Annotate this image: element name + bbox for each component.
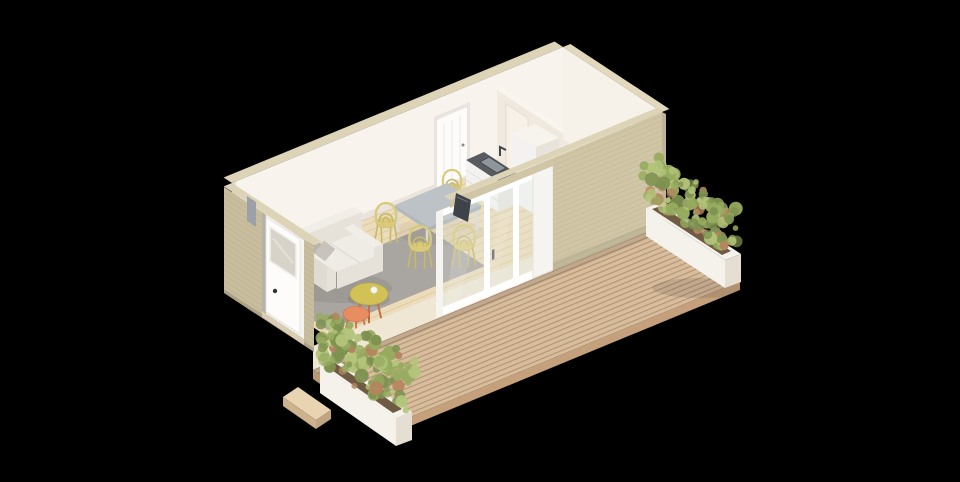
planter-right-end xyxy=(725,254,741,288)
foliage-leaf xyxy=(318,353,332,367)
foliage-leaf xyxy=(334,352,343,361)
foliage-leaf xyxy=(710,207,718,215)
coffee-cup xyxy=(371,287,378,294)
door-right-panel xyxy=(533,164,553,278)
foliage-leaf xyxy=(666,202,679,215)
foliage-leaf xyxy=(688,218,699,229)
foliage-leaf xyxy=(404,378,411,385)
foliage-leaf xyxy=(688,186,696,194)
foliage-leaf xyxy=(727,237,736,246)
side-table-top xyxy=(343,307,369,322)
sofa-arm-right-front xyxy=(374,244,383,273)
foliage-leaf xyxy=(384,386,390,392)
foliage-leaf xyxy=(725,215,735,225)
isometric-floorplan xyxy=(0,0,960,482)
foliage-leaf xyxy=(398,362,405,369)
interior-door xyxy=(434,102,470,192)
render-canvas xyxy=(0,0,960,482)
door-handle xyxy=(492,249,494,260)
coffee-table-top xyxy=(350,283,388,305)
foliage-leaf xyxy=(332,313,340,321)
foliage-leaf xyxy=(392,380,404,392)
foliage-leaf xyxy=(351,383,357,389)
foliage-leaf xyxy=(346,361,352,367)
door-left-stile xyxy=(436,209,443,318)
foliage-leaf xyxy=(645,172,659,186)
foliage-leaf xyxy=(371,335,382,346)
door-mullion-1 xyxy=(484,191,490,299)
foliage-leaf xyxy=(330,322,335,327)
foliage-leaf xyxy=(703,230,713,240)
foliage-leaf xyxy=(669,167,677,175)
foliage-leaf xyxy=(693,179,699,185)
foliage-leaf xyxy=(733,225,739,231)
entry-door-gap xyxy=(262,212,266,314)
foliage-leaf xyxy=(395,352,402,359)
foliage-leaf xyxy=(660,169,667,176)
foliage-leaf xyxy=(686,198,698,210)
foliage-leaf xyxy=(316,319,326,329)
foliage-leaf xyxy=(369,381,383,395)
foliage-leaf xyxy=(709,197,715,203)
foliage-leaf xyxy=(657,176,670,189)
foliage-leaf xyxy=(681,210,689,218)
foliage-leaf xyxy=(318,343,327,352)
door-mullion-2 xyxy=(513,179,519,287)
foliage-leaf xyxy=(316,332,329,345)
foliage-leaf xyxy=(699,201,708,210)
foliage-leaf xyxy=(350,367,357,374)
foliage-leaf xyxy=(363,331,372,340)
planter-front-end xyxy=(396,412,412,446)
foliage-leaf xyxy=(346,322,353,329)
foliage-leaf xyxy=(647,189,657,199)
foliage-leaf xyxy=(392,345,400,353)
foliage-leaf xyxy=(393,373,402,382)
interior-door-handle xyxy=(462,144,465,147)
foliage-leaf xyxy=(671,181,679,189)
foliage-leaf xyxy=(410,357,419,366)
entry-door-handle xyxy=(273,289,277,293)
foliage-leaf xyxy=(354,336,360,342)
foliage-leaf xyxy=(665,197,671,203)
foliage-leaf xyxy=(714,226,720,232)
foliage-leaf xyxy=(403,407,410,414)
foliage-leaf xyxy=(374,356,385,367)
foliage-leaf xyxy=(640,161,649,170)
foliage-leaf xyxy=(335,334,348,347)
foliage-leaf xyxy=(395,395,407,407)
foliage-leaf xyxy=(698,217,706,225)
